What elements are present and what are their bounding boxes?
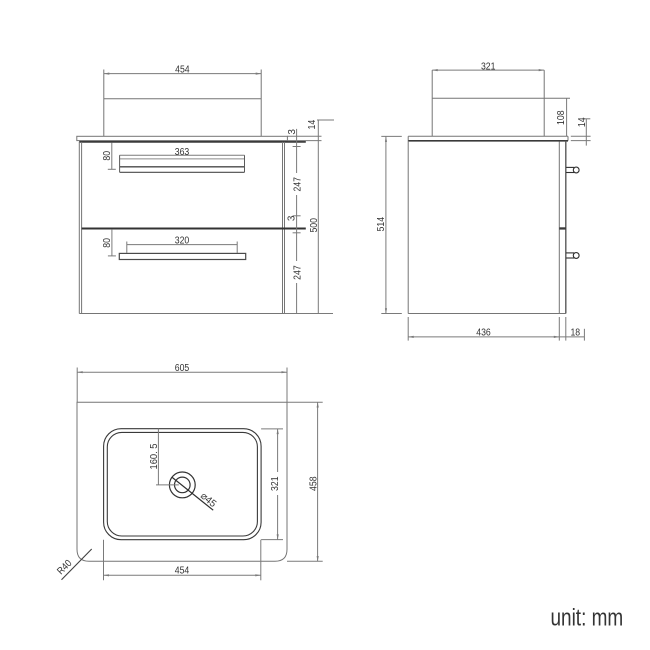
svg-text:500: 500 (309, 218, 320, 233)
svg-text:160. 5: 160. 5 (149, 443, 160, 469)
svg-text:3: 3 (286, 215, 297, 221)
svg-text:514: 514 (376, 217, 387, 232)
svg-text:14: 14 (577, 117, 588, 127)
svg-text:605: 605 (175, 363, 190, 374)
svg-text:320: 320 (175, 236, 190, 247)
svg-text:454: 454 (175, 565, 190, 576)
svg-text:321: 321 (270, 476, 281, 491)
svg-text:80: 80 (102, 238, 113, 248)
svg-text:454: 454 (175, 64, 190, 75)
svg-text:363: 363 (175, 147, 190, 158)
svg-text:unit: mm: unit: mm (551, 605, 624, 632)
svg-text:321: 321 (481, 61, 496, 72)
svg-text:14: 14 (307, 119, 318, 129)
svg-text:458: 458 (309, 476, 320, 491)
svg-text:3: 3 (287, 129, 298, 135)
svg-text:108: 108 (556, 110, 567, 125)
svg-text:247: 247 (292, 177, 303, 192)
svg-text:80: 80 (102, 151, 113, 161)
svg-text:247: 247 (292, 265, 303, 280)
svg-text:436: 436 (476, 327, 491, 338)
svg-text:18: 18 (570, 327, 580, 338)
